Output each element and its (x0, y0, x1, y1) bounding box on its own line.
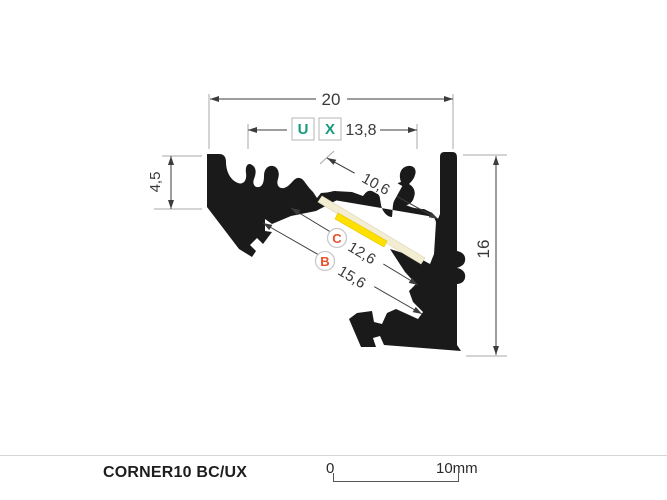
arrowhead-106-upper (327, 158, 336, 165)
arrowhead-20-left (210, 96, 219, 102)
scale-bar (333, 473, 459, 482)
arrowhead-16-top (493, 156, 499, 165)
dimension-left-height: 4,5 (147, 156, 174, 209)
arrowhead-138-left (248, 127, 257, 133)
dim-left-height-value: 4,5 (147, 172, 164, 193)
marker-u-label: U (298, 121, 309, 138)
marker-c-label: C (332, 231, 342, 246)
arrowhead-45-top (168, 156, 174, 165)
profile-left-block (207, 154, 341, 257)
arrowhead-45-bottom (168, 200, 174, 209)
dimension-total-width: 20 (210, 89, 453, 109)
technical-drawing-page: 20 U X 13,8 4,5 16 (0, 0, 667, 500)
profile-drawing: 20 U X 13,8 4,5 16 (0, 0, 667, 455)
arrowhead-138-right (408, 127, 417, 133)
footer-bar: CORNER10 BC/UX 0 10mm (0, 455, 667, 500)
dimension-inner-width: U X 13,8 (248, 116, 417, 143)
marker-b-label: B (320, 254, 329, 269)
arrowhead-20-right (444, 96, 453, 102)
arrowhead-16-bottom (493, 346, 499, 355)
dimension-total-height: 16 (474, 156, 499, 355)
profile-cross-section (207, 152, 465, 351)
dim-total-width-value: 20 (322, 90, 341, 109)
product-name: CORNER10 BC/UX (103, 464, 247, 482)
marker-x-label: X (325, 121, 335, 138)
dim-inner-width-value: 13,8 (345, 122, 376, 139)
dim-total-height-value: 16 (474, 240, 493, 259)
